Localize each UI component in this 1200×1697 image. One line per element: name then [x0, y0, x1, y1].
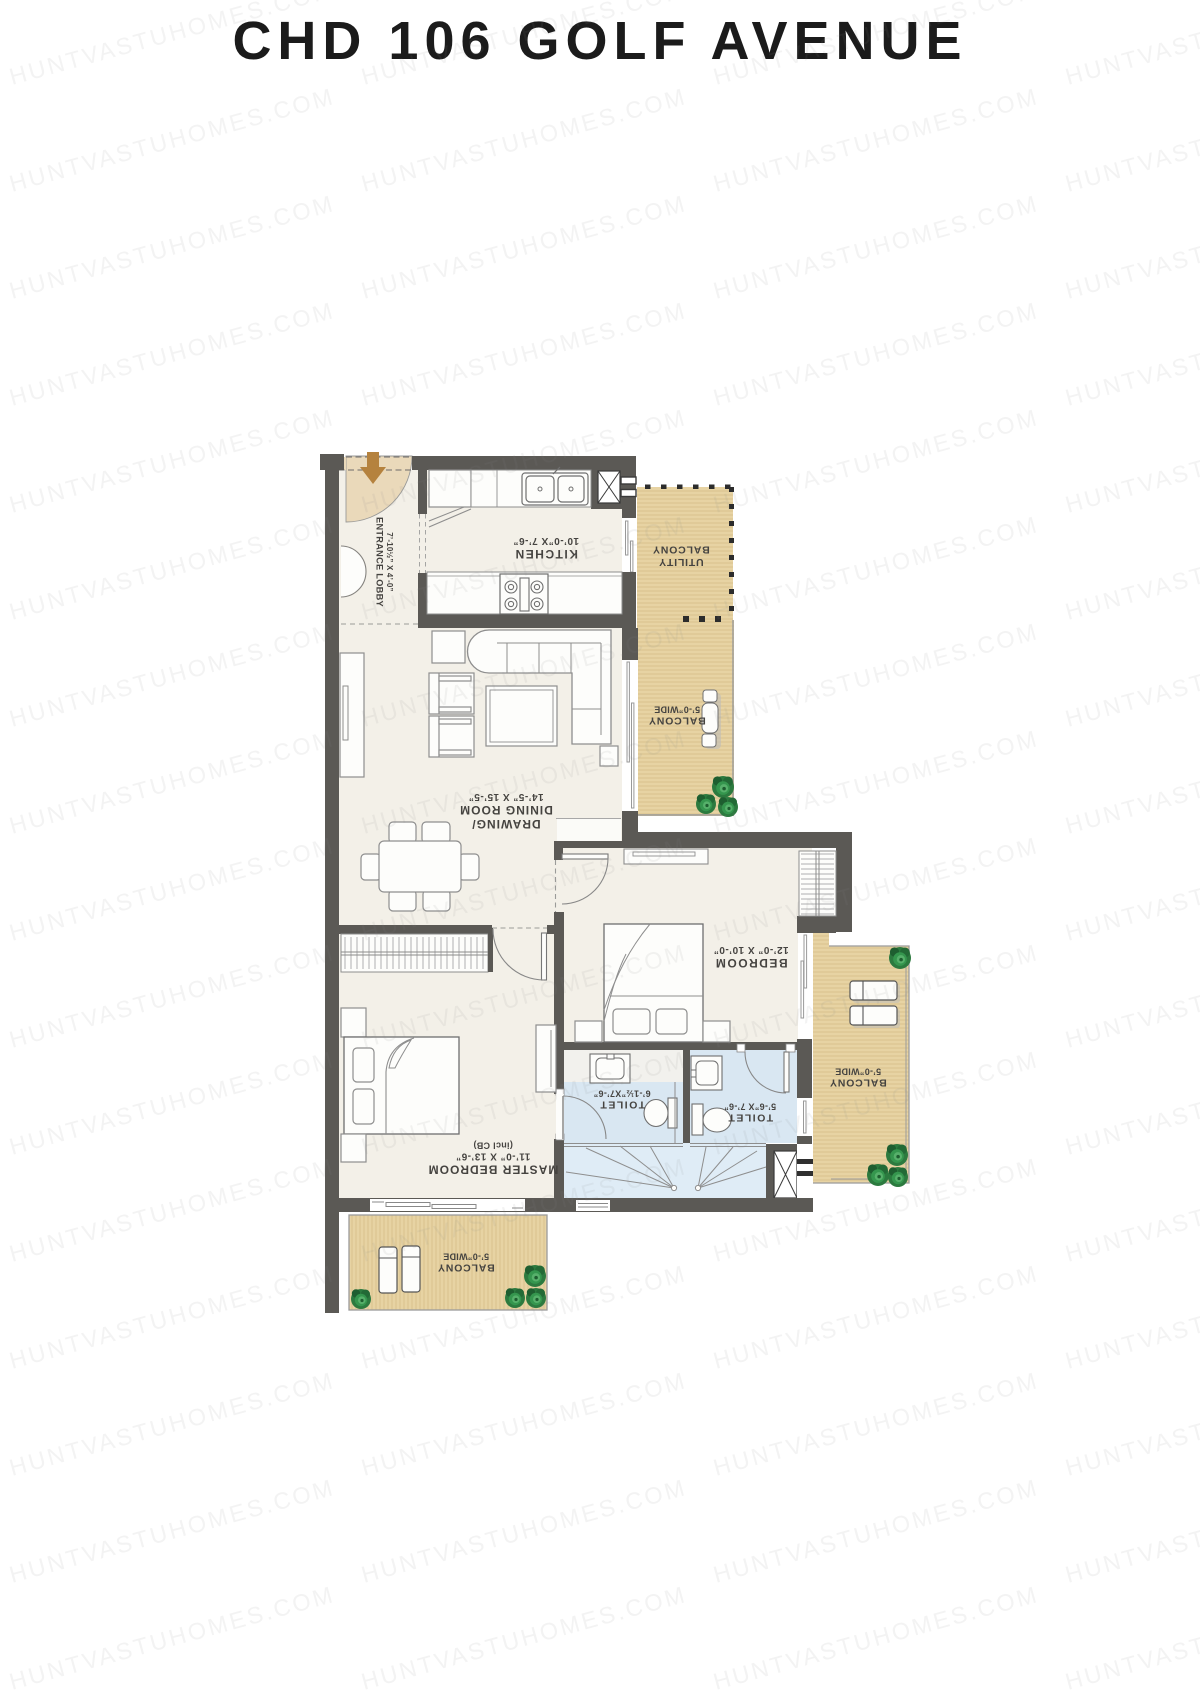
- svg-text:7’-10½” X 4’-0”: 7’-10½” X 4’-0”: [385, 532, 394, 591]
- svg-text:11’-0” X 13’-6”: 11’-0” X 13’-6”: [456, 1151, 531, 1162]
- svg-text:UTILITY: UTILITY: [658, 556, 703, 568]
- svg-text:5’-6”X 7’-6”: 5’-6”X 7’-6”: [724, 1101, 776, 1111]
- svg-text:(incl CB): (incl CB): [473, 1141, 513, 1151]
- svg-text:BALCONY: BALCONY: [648, 714, 706, 726]
- svg-text:BALCONY: BALCONY: [829, 1076, 887, 1088]
- svg-text:BEDROOM: BEDROOM: [714, 956, 787, 970]
- svg-text:5’-0”WIDE: 5’-0”WIDE: [654, 704, 700, 714]
- svg-text:MASTER BEDROOM: MASTER BEDROOM: [428, 1163, 559, 1177]
- svg-text:BALCONY: BALCONY: [437, 1261, 495, 1273]
- svg-text:5’-0”WIDE: 5’-0”WIDE: [835, 1066, 881, 1076]
- svg-text:DRAWING/: DRAWING/: [471, 817, 540, 831]
- svg-text:12’-0” X 10’-0”: 12’-0” X 10’-0”: [713, 944, 788, 955]
- svg-text:5’-0”WIDE: 5’-0”WIDE: [443, 1251, 489, 1261]
- svg-text:TOILET: TOILET: [599, 1098, 645, 1110]
- svg-text:BALCONY: BALCONY: [652, 544, 710, 556]
